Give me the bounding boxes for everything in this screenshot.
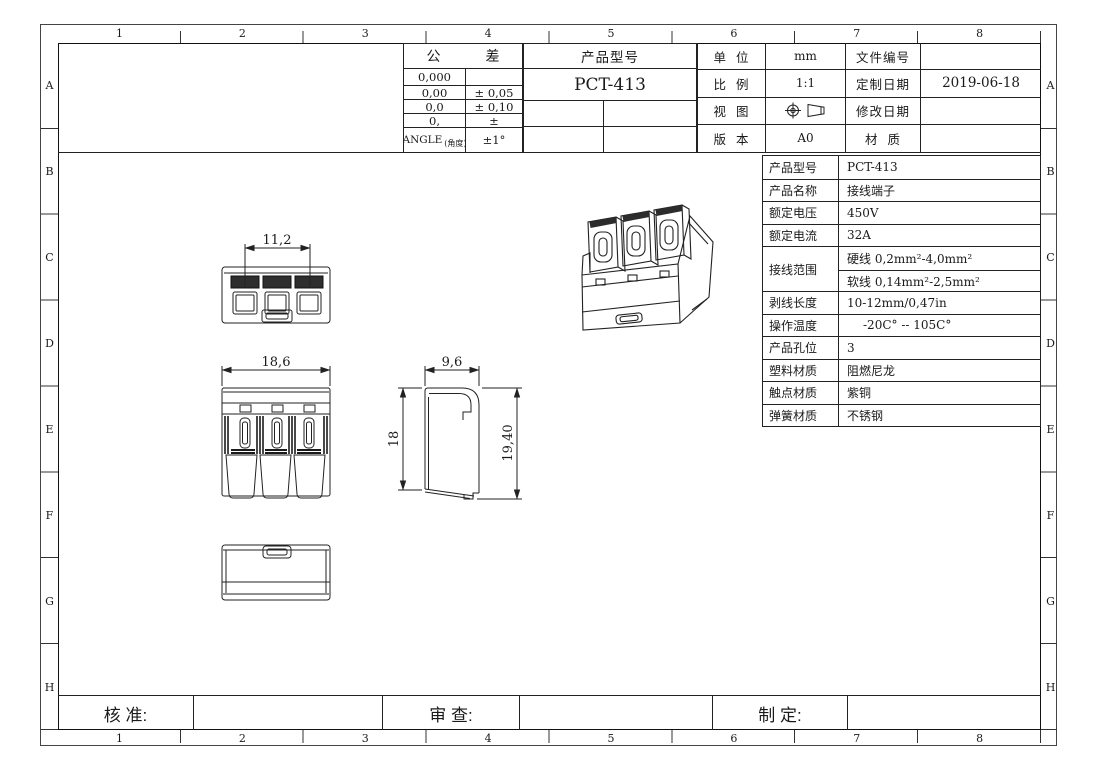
spec-label: 操作温度 xyxy=(763,315,839,337)
spec-row-wiring-range: 接线范围 硬线 0,2mm²-4,0mm² 软线 0,14mm²-2,5mm² xyxy=(763,246,1040,291)
iso-lever xyxy=(588,217,625,272)
info-block: 单 位 mm 文件编号 比 例 1:1 定制日期 2019-06-18 视 图 … xyxy=(697,43,1041,153)
file-no-label: 文件编号 xyxy=(846,43,921,70)
prepared-value xyxy=(848,696,1041,730)
spec-label: 产品孔位 xyxy=(763,337,839,359)
column-label: 5 xyxy=(550,27,673,41)
spec-row: 弹簧材质 不锈钢 xyxy=(763,404,1040,427)
row-label: G xyxy=(1043,558,1058,644)
iso-lever xyxy=(621,211,658,266)
spec-label: 产品名称 xyxy=(763,180,839,202)
version-label: 版 本 xyxy=(698,125,766,152)
tolerance-value: ± 0,05 xyxy=(466,86,522,100)
column-label: 4 xyxy=(427,732,550,746)
reviewed-label: 审 查: xyxy=(383,696,520,730)
column-label: 7 xyxy=(795,732,918,746)
row-labels-right: A B C D E F G H xyxy=(1043,43,1058,730)
angle-note: (角度) xyxy=(444,138,466,149)
tolerance-value: ± xyxy=(466,114,522,128)
row-label: A xyxy=(1043,43,1058,129)
spec-value: -20C° -- 105C° xyxy=(839,315,1040,337)
spec-value: 450V xyxy=(839,202,1040,224)
column-label: 7 xyxy=(795,27,918,41)
row-label: F xyxy=(1043,472,1058,558)
side-view-dimension-left: 18 xyxy=(387,388,422,490)
column-label: 3 xyxy=(304,732,427,746)
dim-text-9-6: 9,6 xyxy=(442,355,463,370)
product-model-value: PCT-413 xyxy=(524,69,696,101)
spec-value: 紫铜 xyxy=(839,382,1040,404)
dim-text-11-2: 11,2 xyxy=(263,233,292,248)
row-label: D xyxy=(1043,301,1058,387)
spec-row: 塑料材质 阻燃尼龙 xyxy=(763,359,1040,382)
material-value xyxy=(921,125,1041,152)
custom-date-value: 2019-06-18 xyxy=(921,70,1041,97)
side-view-dimension-depth: 9,6 xyxy=(425,355,479,386)
dim-text-18-6: 18,6 xyxy=(262,355,291,370)
tolerance-title-left: 公 xyxy=(427,46,441,66)
spec-value: 3 xyxy=(839,337,1040,359)
spec-value: 不锈钢 xyxy=(839,405,1040,427)
product-empty-row xyxy=(524,127,696,152)
row-label: B xyxy=(1043,129,1058,215)
spec-value: 阻燃尼龙 xyxy=(839,360,1040,382)
tolerance-angle: ANGLE (角度) xyxy=(404,128,466,152)
column-label: 6 xyxy=(672,732,795,746)
row-label: B xyxy=(42,129,57,215)
row-label: D xyxy=(42,301,57,387)
column-label: 6 xyxy=(672,27,795,41)
spec-table: 产品型号 PCT-413 产品名称 接线端子 额定电压 450V 额定电流 32… xyxy=(762,155,1041,427)
column-label: 2 xyxy=(181,732,304,746)
spec-row: 产品名称 接线端子 xyxy=(763,179,1040,202)
column-label: 5 xyxy=(550,732,673,746)
row-label: E xyxy=(1043,387,1058,473)
spec-label: 接线范围 xyxy=(763,247,839,291)
header-bottom-line xyxy=(58,152,404,153)
top-view: 11,2 xyxy=(222,233,330,323)
unit-label: 单 位 xyxy=(698,43,766,70)
prepared-label: 制 定: xyxy=(713,696,848,730)
spec-label: 触点材质 xyxy=(763,382,839,404)
front-view-dimension: 18,6 xyxy=(222,355,330,386)
angle-word: ANGLE xyxy=(404,134,442,146)
drawing-views: 11,2 xyxy=(60,160,760,700)
spec-value: PCT-413 xyxy=(839,156,1040,179)
modify-date-value xyxy=(921,98,1041,125)
side-view-dimension-right: 19,40 xyxy=(477,388,522,499)
row-label: G xyxy=(42,558,57,644)
tolerance-value xyxy=(466,69,522,86)
row-label: H xyxy=(42,644,57,730)
spec-label: 额定电压 xyxy=(763,202,839,224)
spec-value: 32A xyxy=(839,225,1040,247)
spec-label: 塑料材质 xyxy=(763,360,839,382)
row-label: F xyxy=(42,472,57,558)
product-empty-row xyxy=(524,101,696,127)
product-model-title: 产品型号 xyxy=(524,44,696,69)
tolerance-digits: 0, xyxy=(404,114,466,128)
side-view: 9,6 18 19,40 xyxy=(387,355,522,499)
approved-value xyxy=(194,696,383,730)
back-view xyxy=(222,545,330,600)
column-labels-top: 1 2 3 4 5 6 7 8 xyxy=(58,27,1041,41)
tolerance-block: 公 差 0,000 0,00 ± 0,05 0,0 ± 0,10 0, ± AN… xyxy=(403,43,523,153)
spec-row: 触点材质 紫铜 xyxy=(763,381,1040,404)
tolerance-title: 公 差 xyxy=(404,44,522,69)
scale-value: 1:1 xyxy=(766,70,846,97)
spec-row: 操作温度 -20C° -- 105C° xyxy=(763,314,1040,337)
spec-value-soft-wire: 软线 0,14mm²-2,5mm² xyxy=(839,270,1040,293)
scale-label: 比 例 xyxy=(698,70,766,97)
spec-row: 额定电流 32A xyxy=(763,224,1040,247)
tolerance-digits: 0,0 xyxy=(404,100,466,114)
column-label: 8 xyxy=(918,27,1041,41)
spec-row: 产品孔位 3 xyxy=(763,336,1040,359)
spec-row: 剥线长度 10-12mm/0,47in xyxy=(763,291,1040,314)
first-angle-projection-icon xyxy=(783,101,829,120)
isometric-view xyxy=(582,205,713,330)
custom-date-label: 定制日期 xyxy=(846,70,921,97)
file-no-value xyxy=(921,43,1041,70)
view-label: 视 图 xyxy=(698,98,766,125)
column-label: 3 xyxy=(304,27,427,41)
spec-value: 10-12mm/0,47in xyxy=(839,292,1040,314)
column-labels-bottom: 1 2 3 4 5 6 7 8 xyxy=(58,732,1041,746)
product-block: 产品型号 PCT-413 xyxy=(523,43,697,153)
column-label: 1 xyxy=(58,27,181,41)
row-label: C xyxy=(42,215,57,301)
row-label: H xyxy=(1043,644,1058,730)
tolerance-digits: 0,000 xyxy=(404,69,466,86)
front-view: 18,6 xyxy=(222,355,330,498)
tolerance-value: ±1° xyxy=(466,128,522,152)
tolerance-value: ± 0,10 xyxy=(466,100,522,114)
row-label: E xyxy=(42,387,57,473)
spec-label: 弹簧材质 xyxy=(763,405,839,427)
spec-row: 额定电压 450V xyxy=(763,201,1040,224)
unit-value: mm xyxy=(766,43,846,70)
tolerance-title-right: 差 xyxy=(486,46,500,66)
spec-row: 产品型号 PCT-413 xyxy=(763,156,1040,179)
spec-value-stack: 硬线 0,2mm²-4,0mm² 软线 0,14mm²-2,5mm² xyxy=(839,247,1040,291)
dim-text-18: 18 xyxy=(387,431,402,448)
tolerance-digits: 0,00 xyxy=(404,86,466,100)
approved-label: 核 准: xyxy=(58,696,194,730)
row-labels-left: A B C D E F G H xyxy=(42,43,57,730)
projection-symbol xyxy=(766,98,846,125)
spec-label: 产品型号 xyxy=(763,156,839,179)
row-label: A xyxy=(42,43,57,129)
dim-text-19-40: 19,40 xyxy=(501,424,516,461)
column-label: 8 xyxy=(918,732,1041,746)
row-label: C xyxy=(1043,215,1058,301)
spec-value: 接线端子 xyxy=(839,180,1040,202)
version-value: A0 xyxy=(766,125,846,152)
signoff-strip: 核 准: 审 查: 制 定: xyxy=(58,695,1041,730)
modify-date-label: 修改日期 xyxy=(846,98,921,125)
column-label: 2 xyxy=(181,27,304,41)
spec-label: 剥线长度 xyxy=(763,292,839,314)
column-label: 4 xyxy=(427,27,550,41)
spec-value-hard-wire: 硬线 0,2mm²-4,0mm² xyxy=(839,247,1040,270)
reviewed-value xyxy=(520,696,713,730)
column-label: 1 xyxy=(58,732,181,746)
spec-label: 额定电流 xyxy=(763,225,839,247)
material-label: 材 质 xyxy=(846,125,921,152)
